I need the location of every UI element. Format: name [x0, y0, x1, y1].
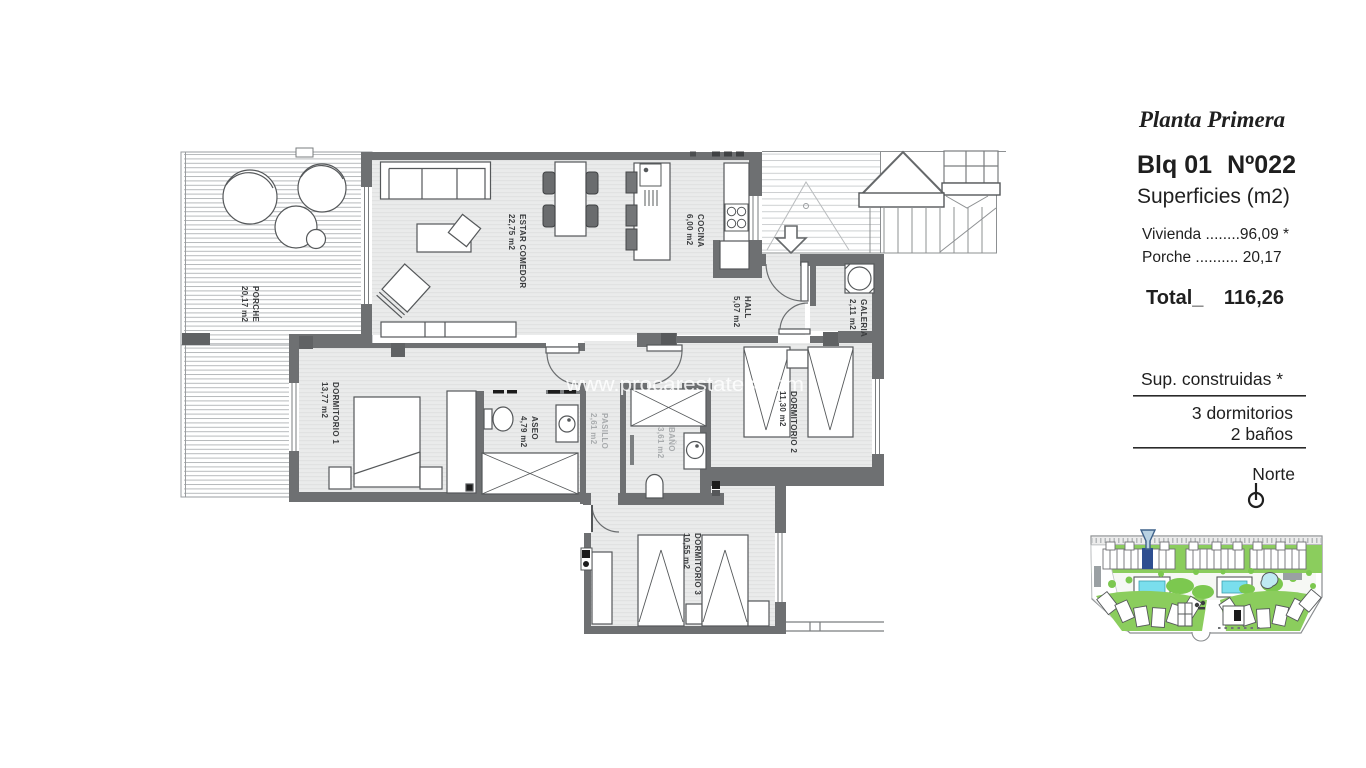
svg-text:Sup. construidas *: Sup. construidas *	[1141, 369, 1283, 389]
svg-text:DORMITORIO 1: DORMITORIO 1	[331, 382, 340, 444]
svg-text:3 dormitorios: 3 dormitorios	[1192, 403, 1293, 423]
svg-text:6,00 m2: 6,00 m2	[685, 214, 694, 246]
svg-text:DORMITORIO 3: DORMITORIO 3	[693, 533, 702, 595]
svg-text:ASEO: ASEO	[530, 416, 539, 440]
svg-text:116,26: 116,26	[1224, 287, 1284, 309]
svg-text:Porche .......... 20,17: Porche .......... 20,17	[1142, 249, 1282, 266]
svg-text:Total_: Total_	[1146, 287, 1204, 309]
svg-text:BAÑO: BAÑO	[667, 427, 676, 452]
svg-text:5,07 m2: 5,07 m2	[732, 296, 741, 328]
svg-text:Nº022: Nº022	[1227, 151, 1296, 179]
svg-text:Blq 01: Blq 01	[1137, 151, 1212, 179]
svg-text:PORCHE: PORCHE	[251, 286, 260, 322]
svg-text:10,55 m2: 10,55 m2	[682, 533, 691, 569]
svg-text:13,77 m2: 13,77 m2	[320, 382, 329, 418]
svg-text:Norte: Norte	[1252, 464, 1295, 484]
svg-text:2 baños: 2 baños	[1231, 424, 1294, 444]
svg-text:Vivienda ........96,09 *: Vivienda ........96,09 *	[1142, 226, 1289, 243]
svg-text:4,79 m2: 4,79 m2	[519, 416, 528, 448]
svg-text:22,75 m2: 22,75 m2	[507, 214, 516, 250]
svg-text:PASILLO: PASILLO	[600, 413, 609, 449]
svg-text:DORMITORIO 2: DORMITORIO 2	[789, 391, 798, 453]
svg-text:Superficies (m2): Superficies (m2)	[1137, 185, 1290, 208]
svg-text:www.procarestates.com: www.procarestates.com	[565, 374, 804, 396]
svg-text:11,30 m2: 11,30 m2	[778, 391, 787, 427]
svg-text:2,61 m2: 2,61 m2	[589, 413, 598, 445]
svg-text:ESTAR COMEDOR: ESTAR COMEDOR	[518, 214, 527, 288]
svg-text:20,17 m2: 20,17 m2	[240, 286, 249, 322]
svg-text:GALERIA: GALERIA	[859, 299, 868, 337]
svg-text:2,11 m2: 2,11 m2	[848, 299, 857, 330]
svg-text:HALL: HALL	[743, 296, 752, 319]
svg-text:3,61 m2: 3,61 m2	[656, 427, 665, 459]
svg-text:COCINA: COCINA	[696, 214, 705, 247]
svg-text:Planta Primera: Planta Primera	[1138, 107, 1285, 132]
